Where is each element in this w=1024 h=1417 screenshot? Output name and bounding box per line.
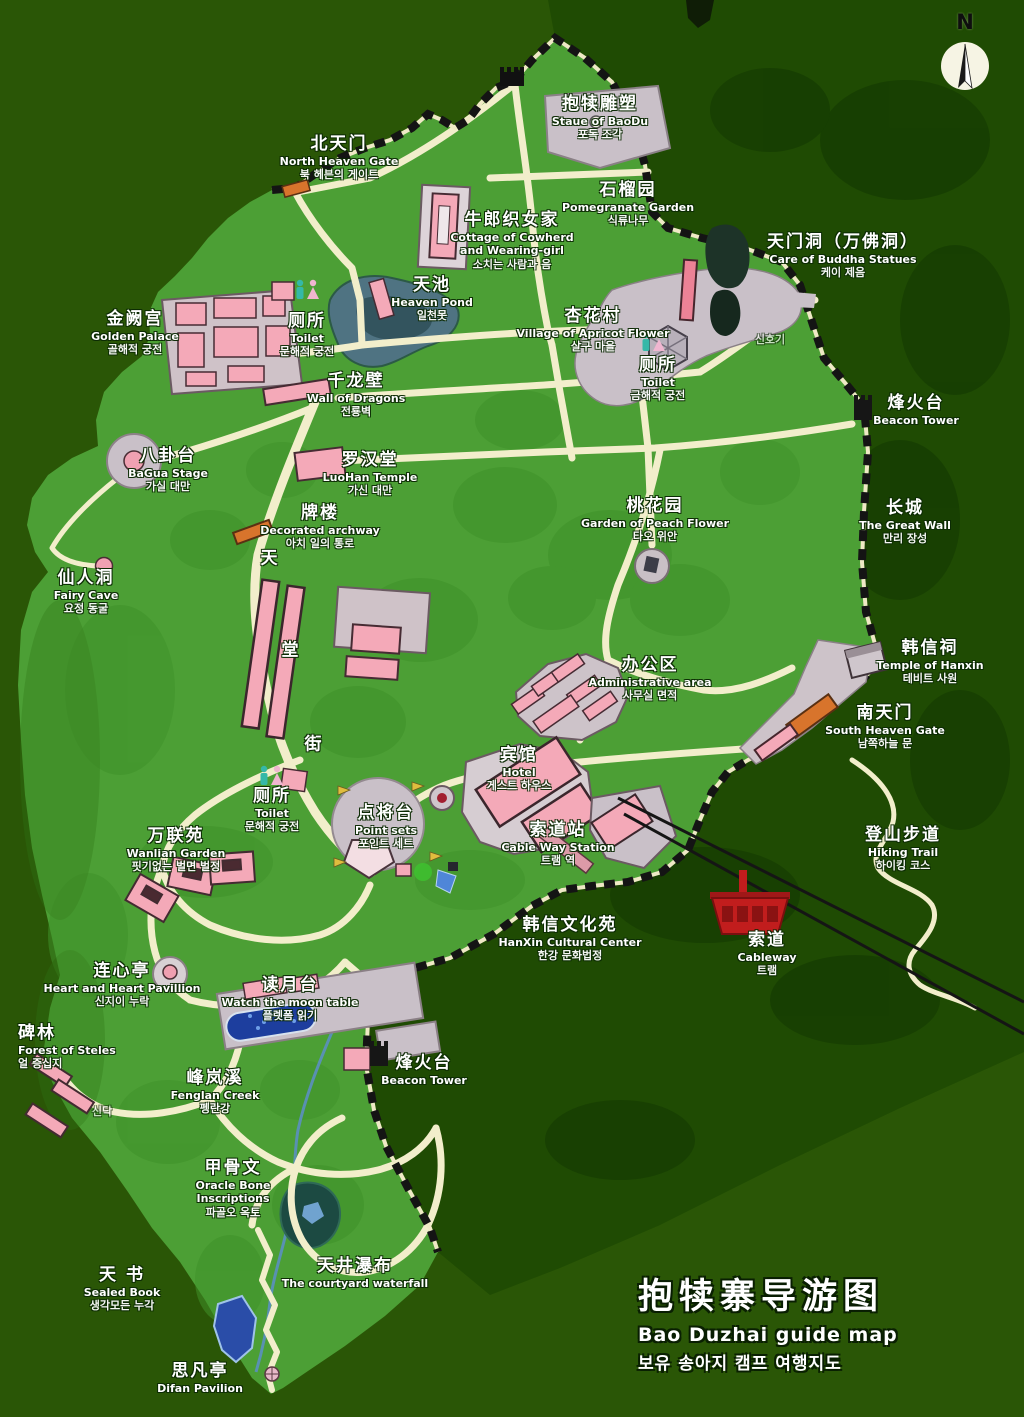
map-label-cableway-zh: 索道: [737, 930, 796, 951]
map-label-hanxin-cultural-ko: 한강 문화법정: [498, 949, 641, 962]
map-label-beacon-tower-ne: 烽火台Beacon Tower: [873, 393, 959, 427]
map-label-heart-pavilion: 连心亭Heart and Heart Pavillion신지이 누락: [44, 961, 201, 1009]
map-label-moon-table: 读月台Watch the moon table플렛폼 읽기: [221, 975, 358, 1023]
map-label-north-heaven-gate-ko: 북 헤븐의 게이트: [280, 168, 399, 181]
map-label-cableway-station: 索道站Cable Way Station트램 역: [501, 820, 614, 868]
map-label-dragon-wall-ko: 전룡벽: [307, 405, 406, 418]
map-label-south-heaven-gate: 南天门South Heaven Gate남쪽하늘 문: [825, 703, 945, 751]
map-label-toilet-apricot: 厕所Toilet금해적 궁전: [631, 355, 685, 403]
map-label-wanlian-garden: 万联苑Wanlian Garden핏기없는 벌면 벌정: [127, 826, 226, 874]
map-label-sindak-ko: 신닥: [92, 1105, 112, 1118]
map-label-hanxin-temple-en: Temple of Hanxin: [876, 659, 983, 672]
ne-beacon-tower: [854, 395, 872, 420]
map-label-courtyard-waterfall: 天井瀑布The courtyard waterfall: [282, 1256, 428, 1290]
map-label-sealed-book: 天 书Sealed Book생각모든 누각: [84, 1265, 161, 1313]
map-label-hanxin-cultural: 韩信文化苑HanXin Cultural Center한강 문화법정: [498, 915, 641, 963]
map-label-dragon-wall-zh: 千龙壁: [307, 371, 406, 392]
map-label-golden-palace-zh: 金阙宫: [91, 309, 179, 330]
map-label-toilet-north-ko: 문해적 궁전: [280, 345, 334, 358]
map-label-golden-palace-ko: 골해적 궁전: [91, 343, 179, 356]
street-name-char-2: 街: [305, 730, 322, 755]
map-label-sealed-book-en: Sealed Book: [84, 1286, 161, 1299]
map-label-hanxin-temple-ko: 테비트 사원: [876, 672, 983, 685]
map-label-sealed-book-zh: 天 书: [84, 1265, 161, 1286]
map-label-fairy-cave-en: Fairy Cave: [54, 589, 119, 602]
map-label-cableway-station-ko: 트램 역: [501, 854, 614, 867]
map-label-sifan-pavilion-zh: 思凡亭: [157, 1361, 243, 1382]
map-label-moon-table-zh: 读月台: [221, 975, 358, 996]
sifan-pavilion-structure: [265, 1367, 279, 1381]
map-label-toilet-apricot-ko: 금해적 궁전: [631, 389, 685, 402]
map-label-baodu-statue-en: Staue of BaoDu: [552, 115, 648, 128]
map-label-pomegranate-garden-ko: 식류나무: [562, 214, 694, 227]
map-label-oracle-bone-en: Oracle Bone Inscriptions: [195, 1179, 270, 1206]
map-title-ko: 보유 송아지 캠프 여행지도: [638, 1349, 898, 1374]
map-label-heaven-pond-ko: 일천못: [391, 309, 473, 322]
map-label-decorated-archway-zh: 牌楼: [260, 503, 380, 524]
map-label-decorated-archway-en: Decorated archway: [260, 524, 380, 537]
map-label-steles-forest-en: Forest of Steles: [18, 1044, 116, 1057]
map-label-hanxin-cultural-zh: 韩信文化苑: [498, 915, 641, 936]
map-label-north-heaven-gate-en: North Heaven Gate: [280, 155, 399, 168]
map-label-sindak: 신닥: [92, 1105, 112, 1118]
map-label-hanxin-temple-zh: 韩信祠: [876, 638, 983, 659]
map-label-oracle-bone-zh: 甲骨文: [195, 1158, 270, 1179]
map-label-toilet-apricot-en: Toilet: [631, 376, 685, 389]
apricot-red-wall: [680, 260, 697, 321]
map-label-hotel-ko: 게스트 하우스: [487, 779, 552, 792]
map-label-toilet-south-zh: 厕所: [245, 786, 299, 807]
map-label-steles-forest-zh: 碑林: [18, 1023, 116, 1044]
map-label-fenglan-creek-zh: 峰岚溪: [171, 1068, 260, 1089]
map-label-point-sets: 点将台Point sets포인트 세트: [355, 803, 417, 851]
map-label-point-sets-ko: 포인트 세트: [355, 837, 417, 850]
map-label-golden-palace-en: Golden Palace: [91, 330, 179, 343]
map-label-toilet-south: 厕所Toilet문해적 궁전: [245, 786, 299, 834]
map-label-pomegranate-garden-en: Pomegranate Garden: [562, 201, 694, 214]
map-label-hiking-trail: 登山步道Hiking Trail하이킹 코스: [865, 825, 941, 873]
map-label-hanxin-temple: 韩信祠Temple of Hanxin테비트 사원: [876, 638, 983, 686]
map-label-point-sets-en: Point sets: [355, 824, 417, 837]
map-label-baodu-statue: 抱犊雕塑Staue of BaoDu포독 조각: [552, 94, 648, 142]
map-label-signal-ko: 신호기: [755, 333, 785, 346]
map-label-beacon-tower-s-zh: 烽火台: [381, 1053, 467, 1074]
map-label-south-heaven-gate-ko: 남쪽하늘 문: [825, 737, 945, 750]
map-label-dragon-wall-en: Wall of Dragons: [307, 392, 406, 405]
street-name-char-1: 堂: [282, 636, 299, 661]
map-label-hotel: 宾馆Hotel게스트 하우스: [487, 745, 552, 793]
map-label-heaven-pond-en: Heaven Pond: [391, 296, 473, 309]
map-label-cowherd-cottage: 牛郎织女家Cottage of Cowherd and Wearing-girl…: [450, 210, 573, 271]
map-label-south-heaven-gate-zh: 南天门: [825, 703, 945, 724]
map-label-great-wall-zh: 长城: [859, 498, 951, 519]
map-label-cableway-ko: 트램: [737, 964, 796, 977]
map-label-decorated-archway: 牌楼Decorated archway아치 일의 통로: [260, 503, 380, 551]
map-label-peach-garden-en: Garden of Peach Flower: [581, 517, 729, 530]
map-label-fairy-cave-ko: 요정 동굴: [54, 602, 119, 615]
map-label-peach-garden-ko: 타오 위안: [581, 530, 729, 543]
map-label-wanlian-garden-zh: 万联苑: [127, 826, 226, 847]
map-label-toilet-south-en: Toilet: [245, 807, 299, 820]
map-label-cowherd-cottage-en: Cottage of Cowherd and Wearing-girl: [450, 231, 573, 258]
map-title-zh: 抱犊寨导游图: [638, 1268, 898, 1319]
map-label-admin-area-zh: 办公区: [588, 655, 711, 676]
map-label-pomegranate-garden: 石榴园Pomegranate Garden식류나무: [562, 180, 694, 228]
map-label-fenglan-creek-en: Fenglan Creek: [171, 1089, 260, 1102]
map-label-peach-garden-zh: 桃花园: [581, 496, 729, 517]
map-label-bagua-stage-en: BaGua Stage: [128, 467, 208, 480]
map-label-hotel-zh: 宾馆: [487, 745, 552, 766]
map-label-bagua-stage: 八卦台BaGua Stage가실 대만: [128, 446, 208, 494]
map-label-admin-area: 办公区Administrative area사무실 면적: [588, 655, 711, 703]
map-label-toilet-north: 厕所Toilet문해적 궁전: [280, 311, 334, 359]
map-label-admin-area-ko: 사무실 면적: [588, 689, 711, 702]
map-label-fenglan-creek: 峰岚溪Fenglan Creek펭란강: [171, 1068, 260, 1116]
map-label-baodu-statue-ko: 포독 조각: [552, 128, 648, 141]
map-label-cableway-en: Cableway: [737, 951, 796, 964]
map-label-luohan-temple: 罗汉堂LuoHan Temple가신 대만: [323, 450, 418, 498]
map-label-apricot-village-zh: 杏花村: [516, 306, 669, 327]
map-label-bagua-stage-zh: 八卦台: [128, 446, 208, 467]
map-label-bagua-stage-ko: 가실 대만: [128, 480, 208, 493]
map-label-great-wall-en: The Great Wall: [859, 519, 951, 532]
map-label-cableway: 索道Cableway트램: [737, 930, 796, 978]
map-label-sifan-pavilion: 思凡亭Difan Pavilion: [157, 1361, 243, 1395]
map-label-hiking-trail-zh: 登山步道: [865, 825, 941, 846]
map-label-hanxin-cultural-en: HanXin Cultural Center: [498, 936, 641, 949]
map-label-oracle-bone: 甲骨文Oracle Bone Inscriptions파골오 옥토: [195, 1158, 270, 1219]
map-label-great-wall-ko: 만리 장성: [859, 532, 951, 545]
map-label-tianmen-cave-en: Care of Buddha Statues: [767, 253, 919, 266]
compass-north-label: N: [936, 10, 994, 34]
map-label-wanlian-garden-en: Wanlian Garden: [127, 847, 226, 860]
map-label-cowherd-cottage-zh: 牛郎织女家: [450, 210, 573, 231]
map-label-peach-garden: 桃花园Garden of Peach Flower타오 위안: [581, 496, 729, 544]
map-label-tianmen-cave-zh: 天门洞（万佛洞）: [767, 232, 919, 253]
bao-duzhai-guide-map: N 抱犊寨导游图 Bao Duzhai guide map 보유 송아지 캠프 …: [0, 0, 1024, 1417]
map-label-luohan-temple-en: LuoHan Temple: [323, 471, 418, 484]
map-label-toilet-north-zh: 厕所: [280, 311, 334, 332]
map-label-heaven-pond-zh: 天池: [391, 275, 473, 296]
map-title: 抱犊寨导游图 Bao Duzhai guide map 보유 송아지 캠프 여행…: [638, 1268, 898, 1374]
map-label-cowherd-cottage-ko: 소치는 사람과 음: [450, 258, 573, 271]
map-label-courtyard-waterfall-en: The courtyard waterfall: [282, 1277, 428, 1290]
compass: N: [936, 10, 994, 98]
map-label-great-wall: 长城The Great Wall만리 장성: [859, 498, 951, 546]
map-label-luohan-temple-ko: 가신 대만: [323, 484, 418, 497]
map-label-hotel-en: Hotel: [487, 766, 552, 779]
map-label-oracle-bone-ko: 파골오 옥토: [195, 1206, 270, 1219]
map-label-point-sets-zh: 点将台: [355, 803, 417, 824]
map-label-admin-area-en: Administrative area: [588, 676, 711, 689]
map-label-courtyard-waterfall-zh: 天井瀑布: [282, 1256, 428, 1277]
map-label-south-heaven-gate-en: South Heaven Gate: [825, 724, 945, 737]
map-label-beacon-tower-s-en: Beacon Tower: [381, 1074, 467, 1087]
map-label-tianmen-cave: 天门洞（万佛洞）Care of Buddha Statues케이 제음: [767, 232, 919, 280]
map-label-baodu-statue-zh: 抱犊雕塑: [552, 94, 648, 115]
map-label-heart-pavilion-zh: 连心亭: [44, 961, 201, 982]
map-label-sealed-book-ko: 생각모든 누각: [84, 1299, 161, 1312]
map-label-dragon-wall: 千龙壁Wall of Dragons전룡벽: [307, 371, 406, 419]
map-label-decorated-archway-ko: 아치 일의 통로: [260, 537, 380, 550]
map-label-beacon-tower-s: 烽火台Beacon Tower: [381, 1053, 467, 1087]
map-label-luohan-temple-zh: 罗汉堂: [323, 450, 418, 471]
map-label-cableway-station-en: Cable Way Station: [501, 841, 614, 854]
map-label-apricot-village-ko: 살구 마을: [516, 340, 669, 353]
toilet-north-building: [272, 282, 294, 300]
map-label-beacon-tower-ne-zh: 烽火台: [873, 393, 959, 414]
map-label-toilet-apricot-zh: 厕所: [631, 355, 685, 376]
map-label-steles-forest: 碑林Forest of Steles얼 증십지: [18, 1023, 116, 1071]
map-label-steles-forest-ko: 얼 증십지: [18, 1057, 116, 1070]
map-label-hiking-trail-en: Hiking Trail: [865, 846, 941, 859]
map-label-pomegranate-garden-zh: 石榴园: [562, 180, 694, 201]
map-label-moon-table-ko: 플렛폼 읽기: [221, 1009, 358, 1022]
map-label-apricot-village-en: Village of Apricot Flower: [516, 327, 669, 340]
map-label-wanlian-garden-ko: 핏기없는 벌면 벌정: [127, 860, 226, 873]
map-label-beacon-tower-ne-en: Beacon Tower: [873, 414, 959, 427]
map-label-sifan-pavilion-en: Difan Pavilion: [157, 1382, 243, 1395]
map-label-moon-table-en: Watch the moon table: [221, 996, 358, 1009]
map-label-north-heaven-gate-zh: 北天门: [280, 134, 399, 155]
map-label-cableway-station-zh: 索道站: [501, 820, 614, 841]
map-label-heart-pavilion-ko: 신지이 누락: [44, 995, 201, 1008]
map-label-fairy-cave: 仙人洞Fairy Cave요정 동굴: [54, 568, 119, 616]
compass-rose-icon: [937, 34, 993, 94]
map-label-fenglan-creek-ko: 펭란강: [171, 1102, 260, 1115]
map-label-heart-pavilion-en: Heart and Heart Pavillion: [44, 982, 201, 995]
map-label-fairy-cave-zh: 仙人洞: [54, 568, 119, 589]
map-label-signal: 신호기: [755, 333, 785, 346]
map-label-north-heaven-gate: 北天门North Heaven Gate북 헤븐의 게이트: [280, 134, 399, 182]
map-label-golden-palace: 金阙宫Golden Palace골해적 궁전: [91, 309, 179, 357]
map-title-en: Bao Duzhai guide map: [638, 1324, 898, 1346]
map-label-heaven-pond: 天池Heaven Pond일천못: [391, 275, 473, 323]
map-label-apricot-village: 杏花村Village of Apricot Flower살구 마을: [516, 306, 669, 354]
map-label-hiking-trail-ko: 하이킹 코스: [865, 859, 941, 872]
map-label-toilet-south-ko: 문해적 궁전: [245, 820, 299, 833]
map-label-tianmen-cave-ko: 케이 제음: [767, 266, 919, 279]
map-label-toilet-north-en: Toilet: [280, 332, 334, 345]
street-name-char-0: 天: [261, 544, 278, 569]
